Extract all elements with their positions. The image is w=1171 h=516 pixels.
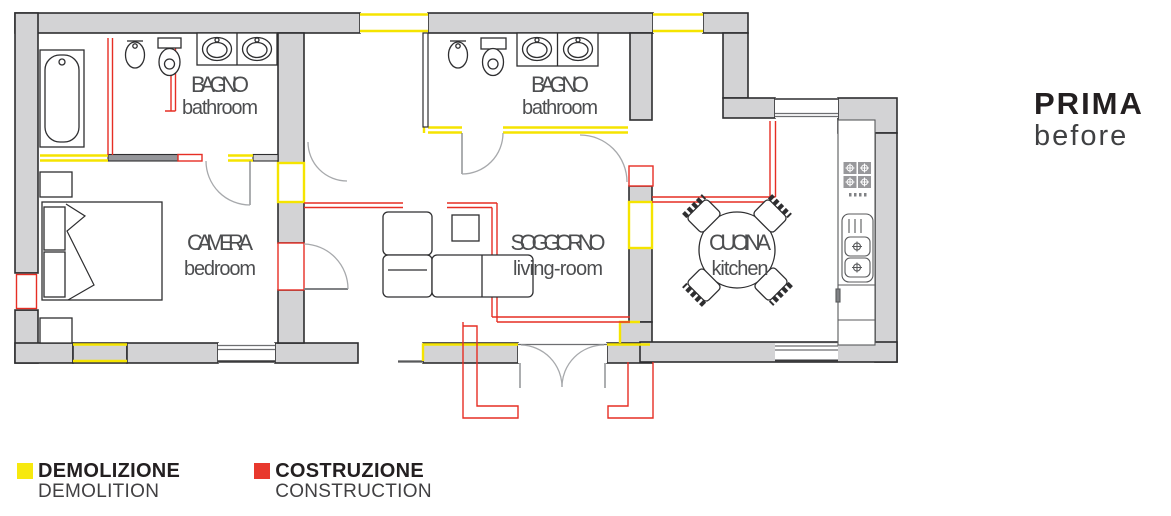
- room-sublabel-soggiorno: living-room: [513, 258, 603, 280]
- room-label-soggiorno: SOGGIORNO: [511, 230, 606, 255]
- window: [398, 343, 423, 363]
- wall-segment: [629, 186, 652, 202]
- wall-segment: [620, 322, 652, 343]
- legend-construction-label: COSTRUZIONE: [275, 461, 432, 481]
- legend-demolition-label: DEMOLIZIONE: [38, 461, 180, 481]
- door-bagno1: [206, 161, 250, 205]
- legend: DEMOLIZIONE DEMOLITION COSTRUZIONE CONST…: [17, 461, 432, 503]
- wall-segment: [629, 248, 652, 322]
- legend-item-construction: COSTRUZIONE CONSTRUCTION: [254, 461, 432, 503]
- wall-segment: [723, 98, 775, 118]
- room-sublabel-bagno2: bathroom: [522, 97, 598, 119]
- wall-segment: [703, 13, 748, 33]
- wall-segment: [253, 155, 278, 162]
- sink-counter: [517, 33, 598, 66]
- legend-demolition-sub: DEMOLITION: [38, 481, 180, 503]
- room-sublabel-camera: bedroom: [184, 258, 256, 280]
- bed: [42, 202, 162, 300]
- wall-segment: [127, 343, 218, 363]
- toilet: [158, 38, 181, 76]
- toilet: [481, 38, 506, 76]
- bidet: [126, 41, 145, 68]
- wall-segment: [278, 33, 304, 163]
- wall-segment: [15, 13, 38, 273]
- bidet: [449, 41, 468, 68]
- construction-swatch: [254, 463, 270, 479]
- wall-segment: [630, 33, 652, 120]
- legend-item-demolition: DEMOLIZIONE DEMOLITION: [17, 461, 180, 503]
- wall-segment: [875, 133, 897, 362]
- room-sublabel-bagno1: bathroom: [182, 97, 258, 119]
- room-label-camera: CAMERA: [187, 230, 253, 255]
- demolition-swatch: [17, 463, 33, 479]
- room-labels: BAGNO bathroom BAGNO bathroom CAMERA bed…: [182, 72, 771, 280]
- title-main: PRIMA: [1034, 88, 1169, 120]
- camera-fixtures: [40, 172, 162, 343]
- wall-segment: [278, 202, 304, 243]
- floor-plan-canvas: BAGNO bathroom BAGNO bathroom CAMERA bed…: [0, 0, 1171, 516]
- room-label-bagno1: BAGNO: [191, 72, 249, 97]
- nightstand: [40, 318, 72, 343]
- door-cucina: [580, 135, 627, 182]
- room-label-cucina: CUCINA: [709, 230, 771, 255]
- wall-segment: [275, 343, 358, 363]
- wall-segment: [278, 290, 304, 343]
- title-sub: before: [1034, 120, 1169, 153]
- window: [15, 273, 38, 310]
- wall-segment: [15, 13, 360, 33]
- plan-title: PRIMA before: [1034, 88, 1169, 153]
- legend-construction-sub: CONSTRUCTION: [275, 481, 432, 503]
- wall-segment: [108, 155, 178, 162]
- door-corridor: [308, 142, 347, 181]
- wall-segment: [723, 33, 748, 98]
- wall-segment: [428, 13, 653, 33]
- door-camera: [304, 244, 348, 289]
- window: [775, 98, 838, 118]
- room-sublabel-cucina: kitchen: [712, 258, 769, 280]
- bathtub: [40, 50, 84, 147]
- nightstand: [40, 172, 72, 197]
- room-label-bagno2: BAGNO: [531, 72, 589, 97]
- wall-segment: [15, 343, 73, 363]
- bagno2-wall: [423, 33, 428, 127]
- side-table: [452, 215, 479, 241]
- floor-plan: BAGNO bathroom BAGNO bathroom CAMERA bed…: [0, 0, 1171, 516]
- wall-segment: [423, 343, 518, 363]
- door-bagno2: [462, 133, 503, 174]
- sink-counter: [197, 33, 277, 65]
